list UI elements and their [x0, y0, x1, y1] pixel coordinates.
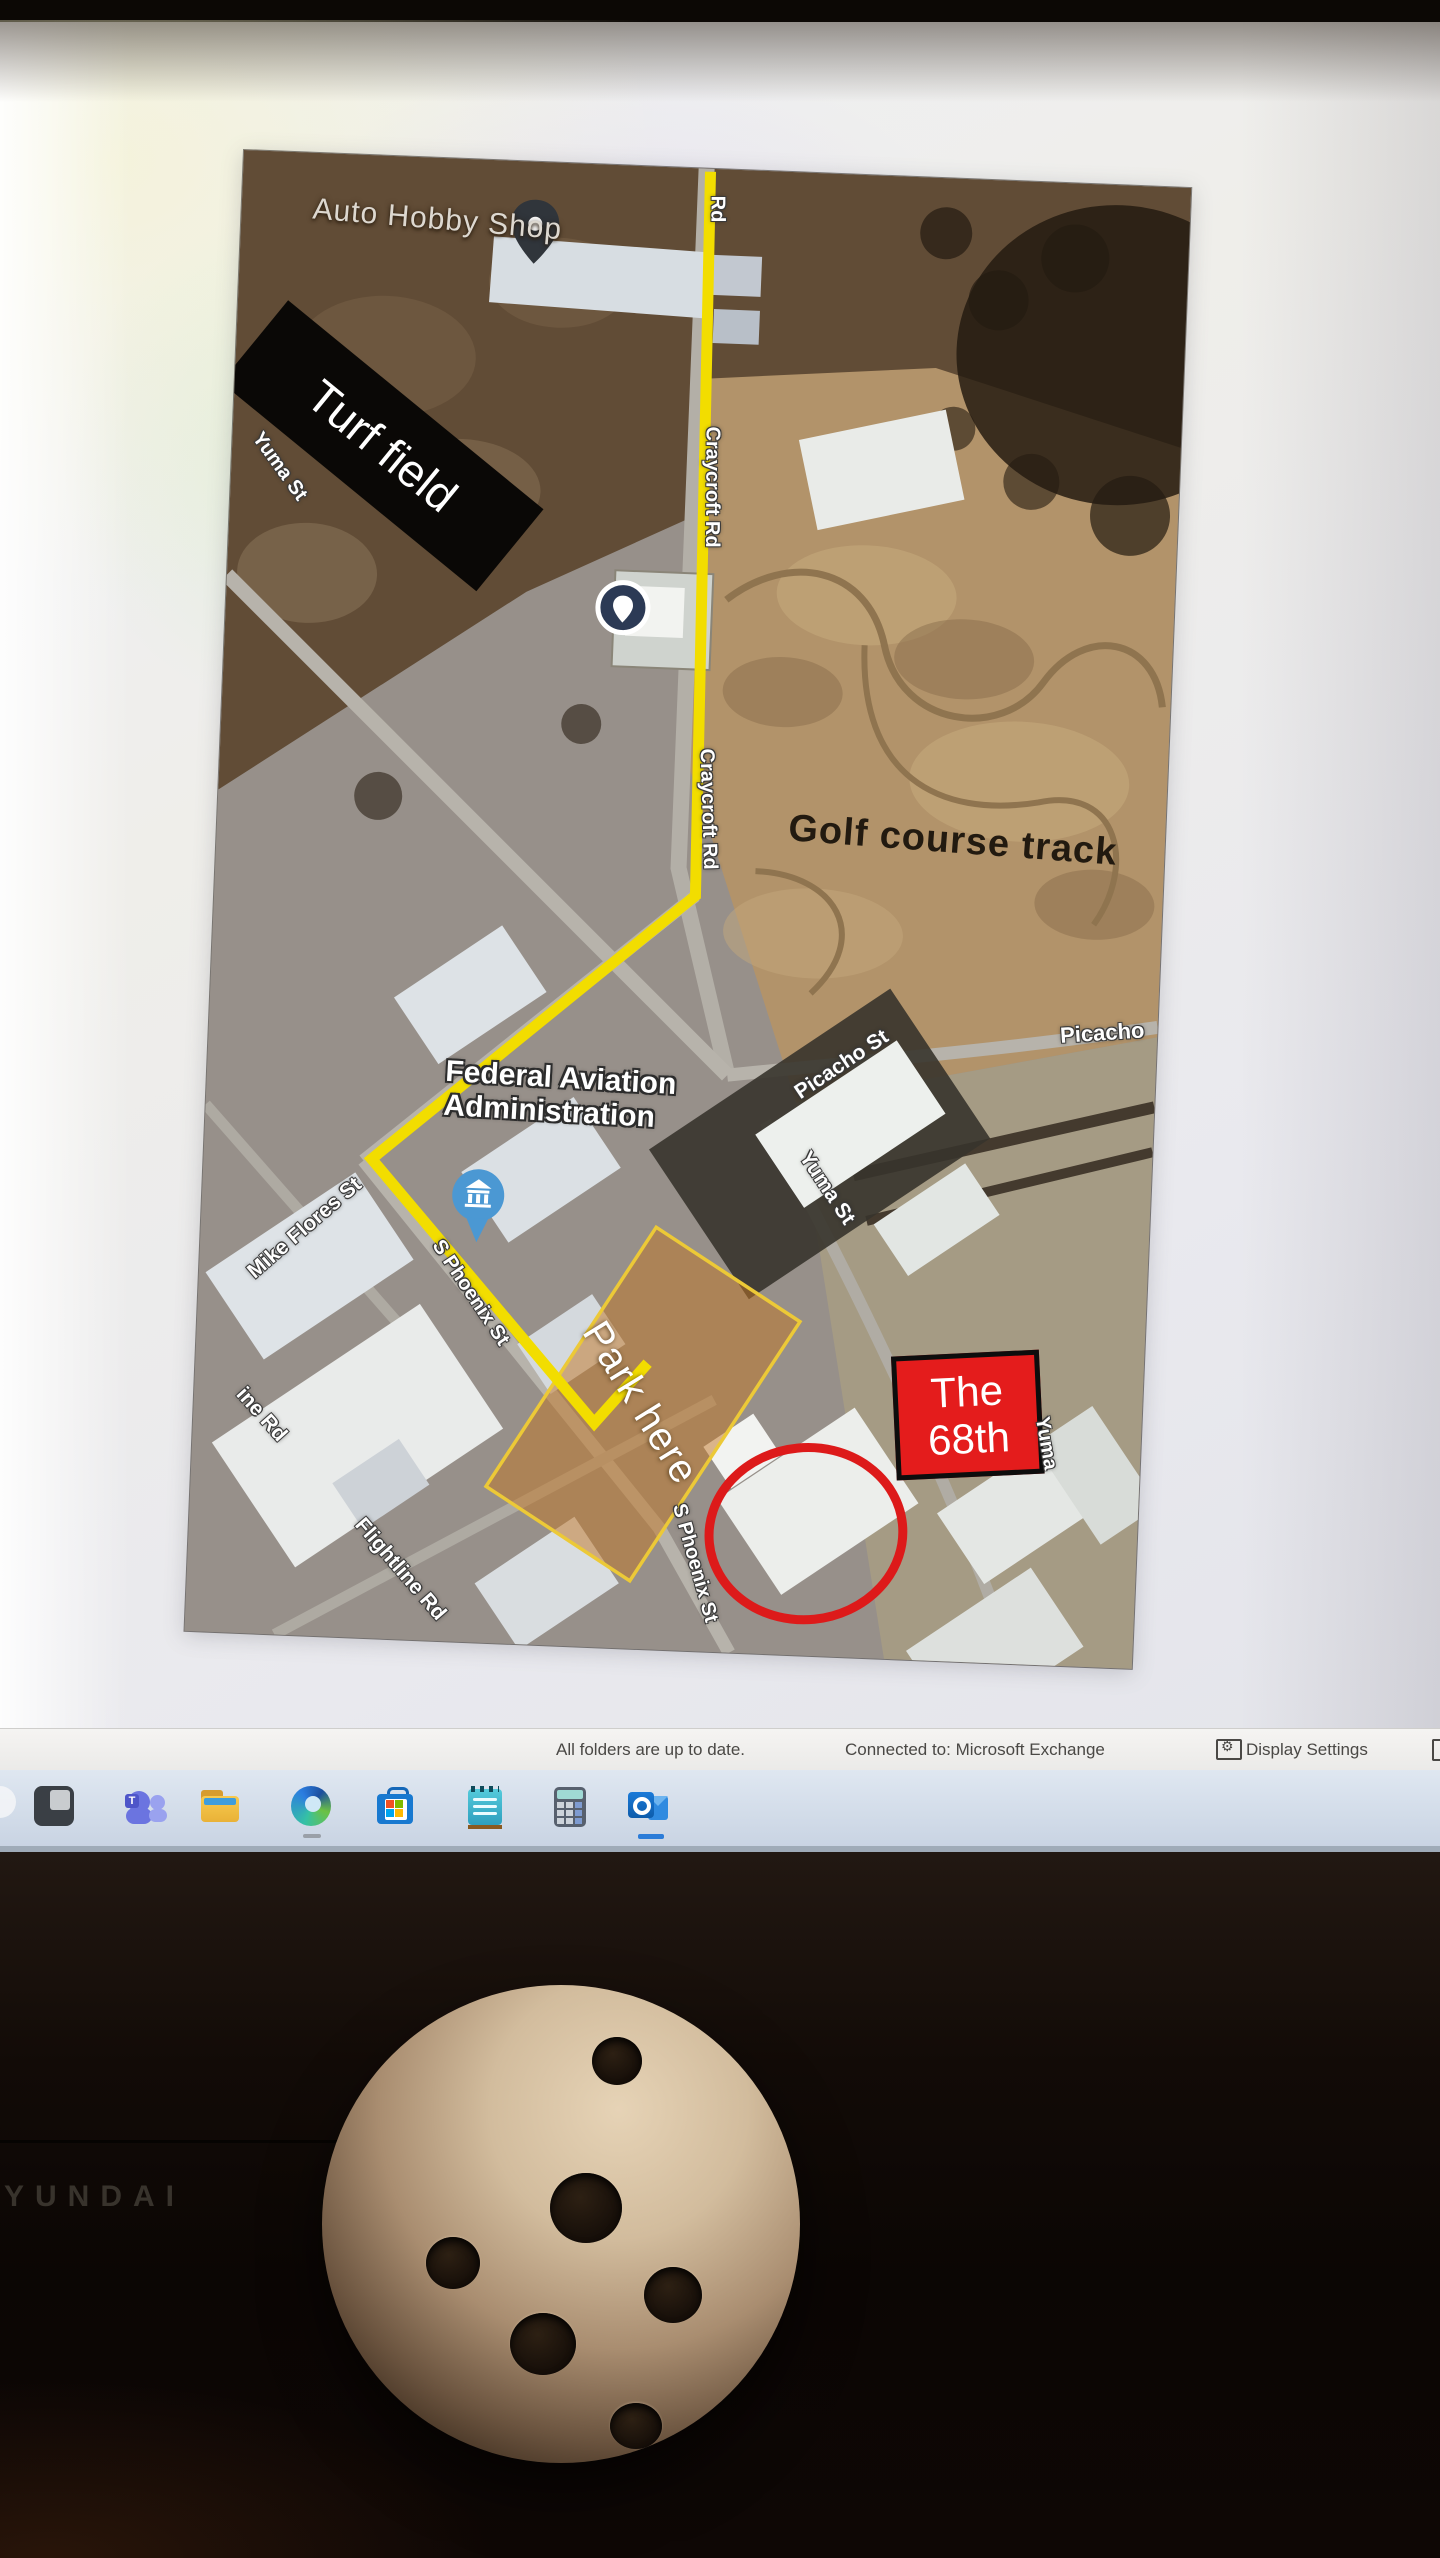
folders-status-text: All folders are up to date.: [556, 1740, 745, 1760]
edge-icon[interactable]: [289, 1784, 333, 1828]
the-68th-callout: The 68th: [891, 1350, 1045, 1481]
street-label-craycroft-rd-upper: Craycroft Rd: [700, 426, 724, 547]
map-pin-icon: [597, 582, 649, 634]
satellite-map-image: Auto Hobby Shop Turf field Golf course t…: [185, 150, 1192, 1669]
photo-vignette: [0, 22, 1440, 102]
monitor-brand-logo: YUNDAI: [4, 2180, 185, 2214]
street-label-craycroft-rd-top: Rd: [705, 196, 728, 223]
ball-hole: [644, 2267, 702, 2323]
screen-glare: [0, 22, 130, 1792]
dark-app-icon[interactable]: [32, 1784, 76, 1828]
ball-hole: [592, 2037, 642, 2085]
ball-hole: [510, 2313, 576, 2375]
windows-taskbar: T: [0, 1770, 1440, 1846]
faa-label: Federal Aviation Administration: [443, 1055, 678, 1136]
reading-view-icon[interactable]: [1432, 1739, 1440, 1761]
outlook-icon[interactable]: [626, 1784, 670, 1828]
the-68th-line1: The: [929, 1366, 1004, 1416]
display-settings-button[interactable]: Display Settings: [1246, 1740, 1368, 1760]
outlook-running-indicator: [638, 1834, 664, 1839]
store-icon[interactable]: [373, 1784, 417, 1828]
screen-glare: [1240, 22, 1440, 1792]
ball-hole: [610, 2403, 662, 2449]
ball-hole: [426, 2237, 480, 2289]
file-explorer-icon[interactable]: [198, 1784, 242, 1828]
street-label-craycroft-rd-lower: Craycroft Rd: [695, 748, 722, 870]
wiffle-ball: [322, 1985, 800, 2463]
notepad-icon[interactable]: [463, 1784, 507, 1828]
calculator-icon[interactable]: [548, 1784, 592, 1828]
ball-hole: [550, 2173, 622, 2243]
street-label-picacho-edge: Picacho: [1059, 1017, 1145, 1048]
display-settings-icon[interactable]: [1216, 1739, 1242, 1760]
the-68th-line2: 68th: [927, 1413, 1011, 1464]
connection-status-text: Connected to: Microsoft Exchange: [845, 1740, 1105, 1760]
teams-icon[interactable]: T: [124, 1784, 168, 1828]
edge-running-indicator: [303, 1834, 321, 1838]
partial-icon[interactable]: [0, 1786, 16, 1818]
photo-of-monitor: Auto Hobby Shop Turf field Golf course t…: [0, 0, 1440, 2558]
outlook-status-bar: All folders are up to date. Connected to…: [0, 1728, 1440, 1771]
dark-app-icon-square: [50, 1790, 70, 1810]
